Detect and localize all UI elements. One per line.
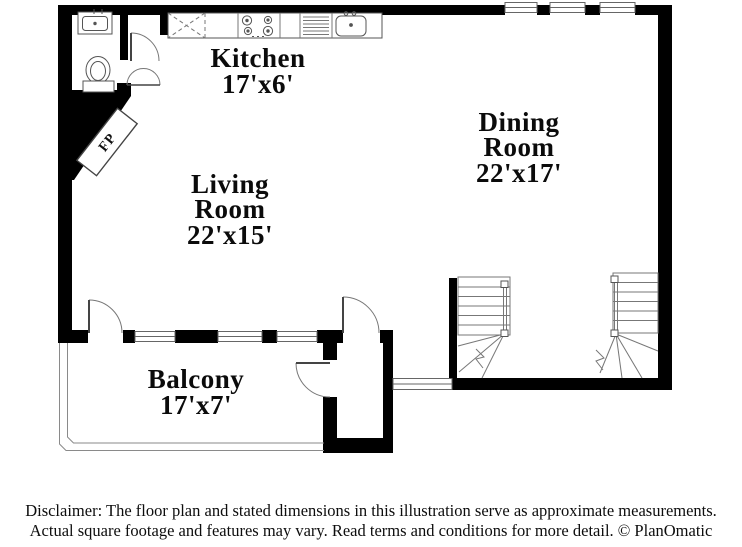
window (135, 332, 175, 342)
wall (262, 330, 277, 343)
room-name: Kitchen (158, 46, 358, 71)
door-vestibule (343, 297, 379, 333)
room-label-dining: Dining Room 22'x17' (454, 110, 584, 186)
wall (585, 5, 600, 15)
wall (323, 333, 337, 360)
room-dims: 22'x17' (454, 161, 584, 186)
window (218, 332, 262, 342)
wall (658, 5, 672, 390)
wall (323, 438, 393, 453)
wall (123, 330, 135, 343)
window (393, 379, 452, 390)
window (600, 3, 635, 13)
room-name: Living Room (165, 172, 295, 222)
window (550, 3, 585, 13)
room-name: Dining Room (454, 110, 584, 160)
disclaimer: Disclaimer: The floor plan and stated di… (0, 501, 742, 540)
door-bathroom (127, 69, 160, 85)
room-label-kitchen: Kitchen 17'x6' (158, 46, 358, 97)
bathroom-fixtures (78, 9, 114, 92)
vanity-sink-icon (78, 9, 112, 34)
kitchen-counter (168, 12, 382, 38)
window (505, 3, 537, 13)
door-balcony (89, 300, 122, 333)
staircase-right (596, 273, 658, 378)
toilet-icon (83, 57, 114, 93)
floor-plan-page: FP (0, 0, 742, 547)
room-label-living: Living Room 22'x15' (165, 172, 295, 248)
wall (58, 330, 88, 343)
room-dims: 17'x7' (96, 393, 296, 418)
wall (383, 330, 393, 453)
room-dims: 17'x6' (158, 72, 358, 97)
disclaimer-line-2: Actual square footage and features may v… (0, 521, 742, 541)
wall (452, 378, 672, 390)
door-hall (131, 33, 159, 61)
door-vestibule-balcony (296, 363, 330, 397)
room-name: Balcony (96, 367, 296, 392)
room-dims: 22'x15' (165, 223, 295, 248)
room-label-balcony: Balcony 17'x7' (96, 367, 296, 418)
window (277, 332, 317, 342)
wall-stair (449, 278, 457, 390)
floor-plan-drawing: FP (0, 0, 742, 497)
staircase-left (458, 277, 510, 378)
wall-kitchen-stub (160, 7, 168, 35)
wall-bathroom-right (120, 15, 128, 60)
wall (175, 330, 218, 343)
disclaimer-line-1: Disclaimer: The floor plan and stated di… (0, 501, 742, 521)
wall (537, 5, 550, 15)
